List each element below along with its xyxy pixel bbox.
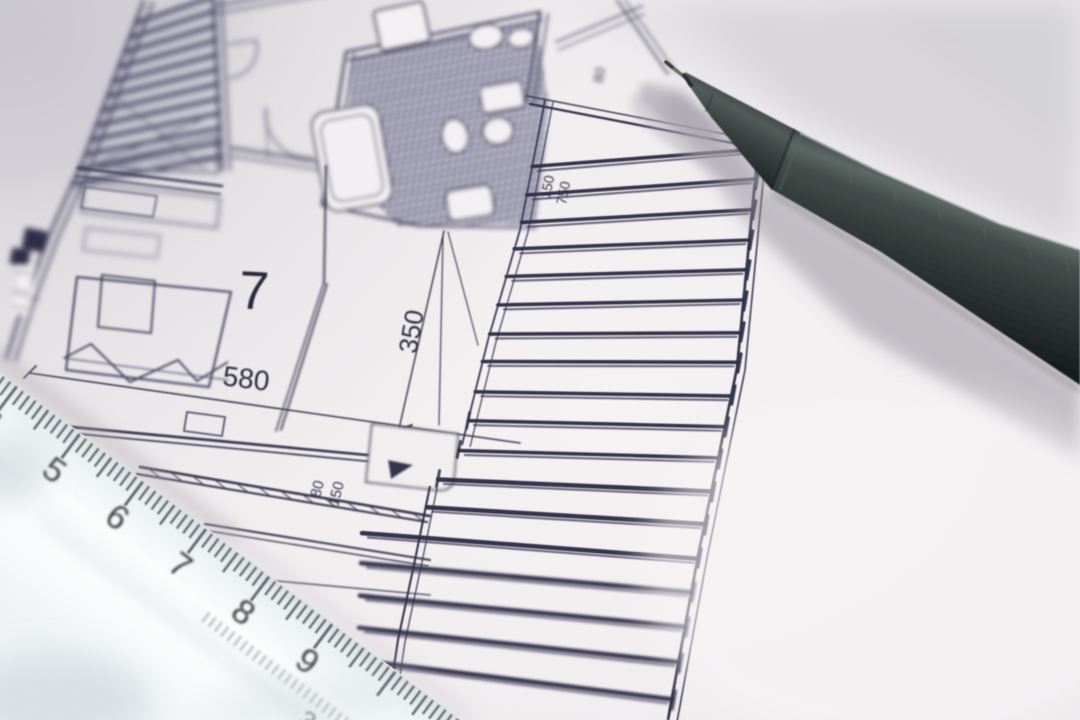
svg-text:7: 7 (237, 260, 270, 321)
svg-text:580: 580 (221, 360, 271, 396)
